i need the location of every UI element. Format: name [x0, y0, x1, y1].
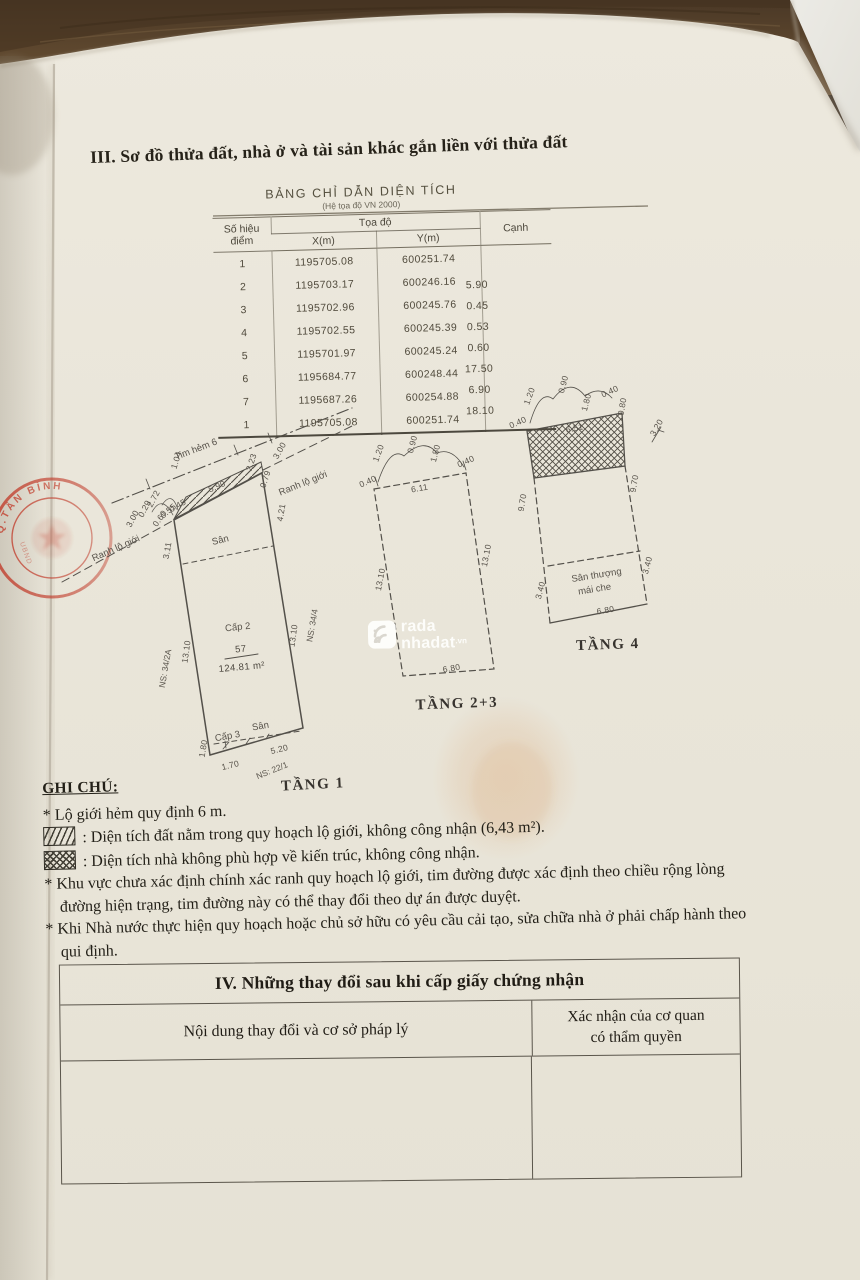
changes-table: IV. Những thay đổi sau khi cấp giấy chứn… — [59, 957, 742, 1184]
site-watermark: rada nhadat.vn — [368, 619, 467, 652]
cross-hatch-legend-swatch — [44, 850, 76, 870]
changes-body-content-cell — [61, 1057, 532, 1184]
plan-tang23-label: TẦNG 2+3 — [415, 694, 498, 714]
coordinate-cell: 1195702.96 — [273, 295, 379, 321]
edge-length-value: 0.60 — [443, 341, 514, 355]
coordinate-cell: 1 — [218, 412, 277, 438]
edge-length-value: 5.90 — [441, 278, 512, 292]
coordinate-cell: 7 — [217, 389, 276, 414]
coordinate-cell: 1195705.08 — [276, 410, 382, 437]
changes-col-confirm: Xác nhận của cơ quan có thẩm quyền — [531, 998, 740, 1055]
notes-lines: * Lộ giới hẻm quy định 6 m.: Diện tích đ… — [43, 788, 758, 964]
coordinate-cell: 1195687.26 — [275, 387, 381, 413]
edge-length-value: 6.90 — [444, 383, 515, 397]
edge-length-value: 0.53 — [442, 320, 513, 334]
coordinate-cell: 1 — [213, 251, 272, 276]
edge-length-column: 5.900.450.530.6017.506.9018.10 — [441, 274, 516, 444]
diagonal-hatch-legend-swatch — [43, 826, 75, 846]
changes-table-title: IV. Những thay đổi sau khi cấp giấy chứn… — [60, 958, 739, 1005]
scanned-document-page: PHƯỜNG 2 Q.TÂN BÌNH UBND — [0, 0, 860, 1280]
changes-table-body — [61, 1054, 741, 1183]
edge-length-value: 0.45 — [442, 299, 513, 313]
coordinate-cell: 5 — [216, 343, 275, 368]
edge-length-value: 17.50 — [443, 362, 514, 376]
coordinate-cell: 1195701.97 — [274, 341, 380, 367]
plan-tang1-label: 57 — [235, 644, 247, 656]
col-header-edge: Cạnh — [479, 210, 551, 246]
coordinate-cell: 600251.74 — [376, 246, 481, 272]
edge-cell — [480, 244, 552, 269]
coordinate-cell: 1195703.17 — [272, 272, 378, 298]
coordinate-cell: 1195684.77 — [274, 364, 380, 390]
area-index-table: BẢNG CHỈ DẪN DIỆN TÍCH (Hệ tọa độ VN 200… — [212, 181, 516, 439]
notes-section: GHI CHÚ: * Lộ giới hẻm quy định 6 m.: Di… — [42, 762, 758, 964]
plan-tang4-label: TẦNG 4 — [576, 635, 640, 654]
edge-length-value: 18.10 — [445, 404, 516, 418]
coordinate-cell: 4 — [215, 321, 274, 346]
coordinate-cell: 3 — [215, 298, 274, 323]
coordinate-cell: 6 — [216, 366, 275, 391]
coordinate-cell: 2 — [214, 275, 273, 300]
col-header-point: Số hiệu điểm — [213, 217, 272, 253]
watermark-text: rada nhadat.vn — [401, 619, 467, 651]
changes-body-confirm-cell — [531, 1054, 741, 1178]
changes-col-content: Nội dung thay đổi và cơ sở pháp lý — [60, 1001, 532, 1061]
radar-watermark-icon — [368, 620, 396, 648]
coordinate-cell: 1195702.55 — [273, 318, 379, 344]
coordinate-cell: 1195705.08 — [271, 248, 377, 274]
changes-section: IV. Những thay đổi sau khi cấp giấy chứn… — [59, 957, 742, 1184]
